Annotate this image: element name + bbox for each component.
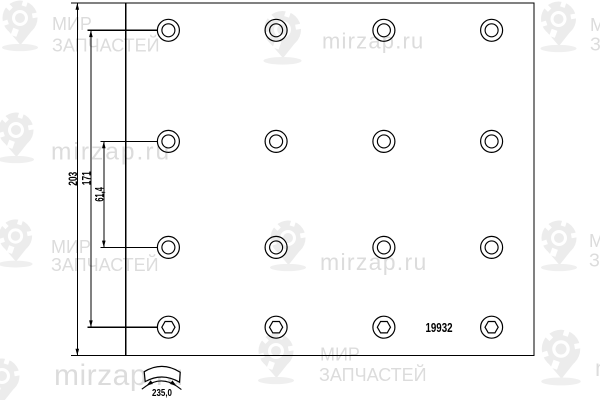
svg-text:МИР: МИР bbox=[320, 345, 360, 365]
svg-text:61,4: 61,4 bbox=[94, 187, 107, 202]
svg-text:МИ: МИ bbox=[590, 15, 600, 35]
svg-text:МИР: МИР bbox=[51, 237, 91, 257]
svg-text:171: 171 bbox=[81, 171, 94, 185]
svg-text:МИР: МИР bbox=[52, 14, 92, 34]
svg-text:ЗА: ЗА bbox=[589, 251, 600, 271]
svg-text:mirzap.ru: mirzap.ru bbox=[51, 139, 171, 166]
svg-text:ЗАПЧАСТЕЙ: ЗАПЧАСТЕЙ bbox=[51, 254, 159, 275]
svg-text:ЗАПЧАСТЕЙ: ЗАПЧАСТЕЙ bbox=[52, 35, 160, 56]
svg-text:ЗА: ЗА bbox=[590, 35, 600, 55]
svg-text:203: 203 bbox=[68, 172, 81, 186]
svg-text:МИ: МИ bbox=[589, 231, 600, 251]
svg-text:mi: mi bbox=[595, 355, 600, 381]
svg-text:ЗАПЧАСТЕЙ: ЗАПЧАСТЕЙ bbox=[319, 364, 427, 385]
svg-text:19932: 19932 bbox=[425, 322, 452, 336]
svg-text:235,0: 235,0 bbox=[152, 387, 172, 398]
